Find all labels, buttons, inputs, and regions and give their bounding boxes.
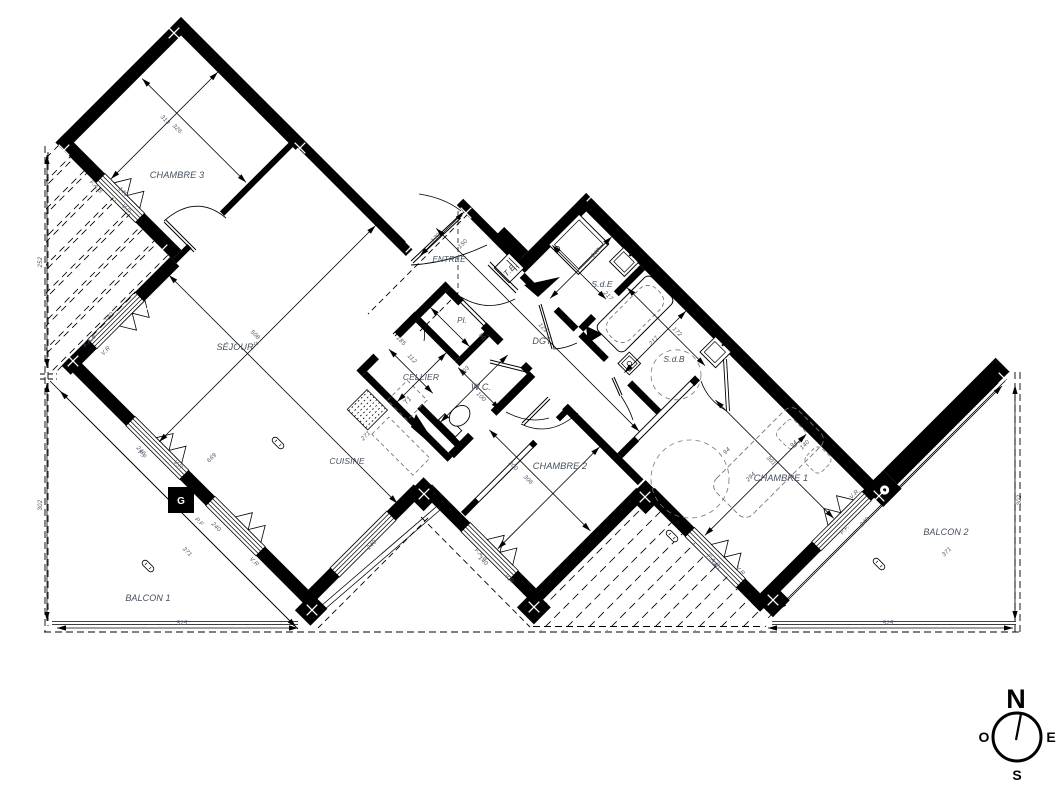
svg-text:326: 326 bbox=[171, 123, 183, 135]
svg-text:S.d.B: S.d.B bbox=[663, 354, 685, 364]
svg-text:94: 94 bbox=[723, 446, 733, 456]
svg-text:DGT: DGT bbox=[532, 336, 553, 346]
svg-text:94: 94 bbox=[790, 439, 800, 449]
svg-text:306: 306 bbox=[522, 474, 534, 486]
svg-text:S.d.E: S.d.E bbox=[591, 279, 613, 289]
svg-text:371: 371 bbox=[941, 546, 953, 558]
svg-text:100: 100 bbox=[475, 391, 487, 403]
svg-text:BALCON 1: BALCON 1 bbox=[125, 593, 170, 603]
svg-text:E: E bbox=[1046, 729, 1055, 745]
svg-text:302: 302 bbox=[38, 499, 44, 510]
svg-text:371: 371 bbox=[181, 546, 193, 558]
svg-text:508: 508 bbox=[249, 329, 261, 341]
svg-text:G: G bbox=[177, 496, 185, 507]
svg-text:Pl.: Pl. bbox=[457, 316, 467, 325]
svg-text:525: 525 bbox=[883, 621, 894, 627]
svg-text:ENTRÉE: ENTRÉE bbox=[432, 255, 466, 264]
svg-text:300: 300 bbox=[507, 460, 519, 472]
svg-text:217: 217 bbox=[648, 335, 661, 348]
svg-text:V.R: V.R bbox=[248, 556, 260, 568]
svg-text:CELLIER: CELLIER bbox=[403, 372, 439, 382]
svg-text:CHAMBRE 2: CHAMBRE 2 bbox=[533, 461, 588, 471]
svg-text:CHAMBRE 3: CHAMBRE 3 bbox=[150, 170, 205, 180]
svg-text:BALCON 2: BALCON 2 bbox=[923, 527, 968, 537]
svg-text:1h: 1h bbox=[253, 341, 259, 346]
svg-text:SÉJOUR: SÉJOUR bbox=[216, 342, 254, 352]
svg-text:W.C.: W.C. bbox=[471, 382, 491, 392]
svg-text:112: 112 bbox=[406, 353, 418, 365]
svg-text:CHAMBRE 1: CHAMBRE 1 bbox=[754, 473, 809, 483]
svg-text:271: 271 bbox=[360, 430, 373, 443]
svg-text:CUISINE: CUISINE bbox=[329, 456, 364, 466]
svg-text:172: 172 bbox=[671, 326, 683, 338]
svg-text:240: 240 bbox=[209, 521, 222, 534]
svg-text:302: 302 bbox=[1017, 494, 1023, 505]
svg-text:252: 252 bbox=[38, 256, 44, 268]
svg-text:525: 525 bbox=[177, 621, 188, 627]
svg-text:185: 185 bbox=[395, 335, 407, 347]
svg-text:150: 150 bbox=[457, 238, 469, 250]
svg-text:669: 669 bbox=[206, 452, 218, 464]
svg-text:V.R: V.R bbox=[100, 345, 112, 357]
svg-text:N: N bbox=[1006, 684, 1026, 714]
svg-text:S: S bbox=[1012, 767, 1021, 783]
svg-text:O: O bbox=[979, 729, 990, 745]
